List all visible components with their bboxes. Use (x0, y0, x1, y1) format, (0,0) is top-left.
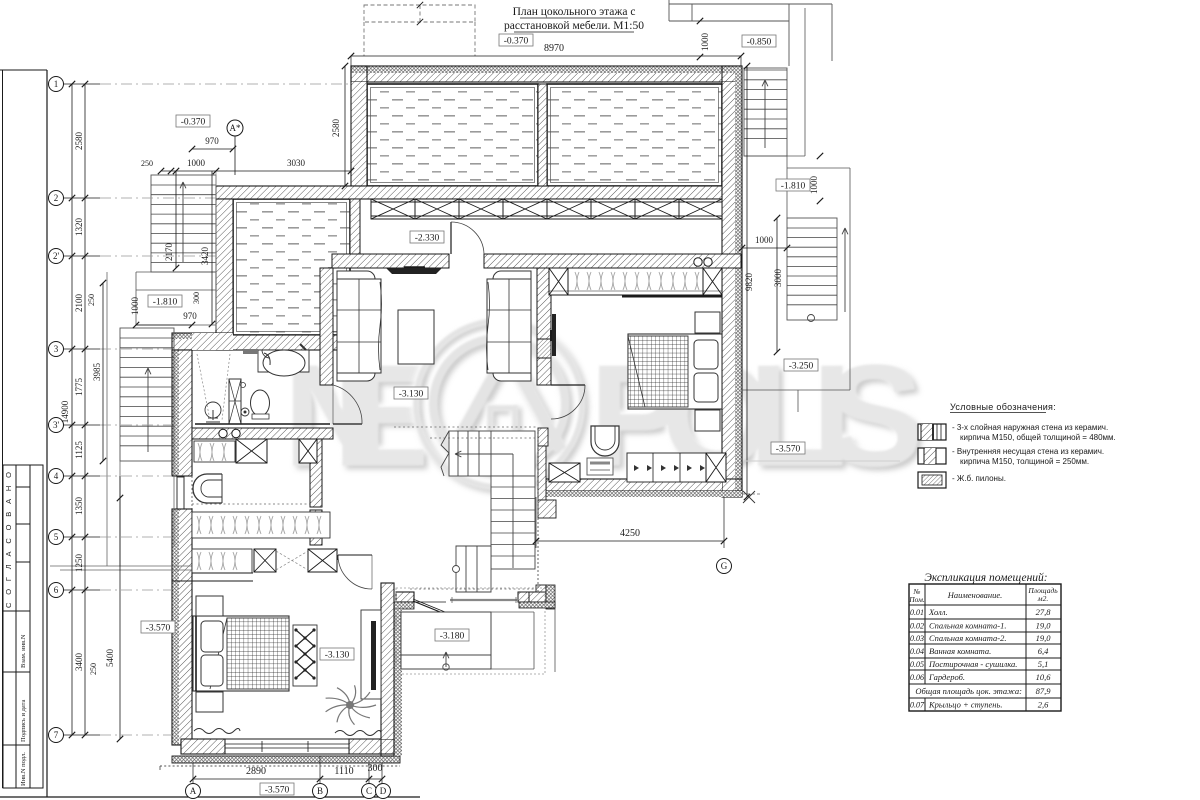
svg-text:970: 970 (205, 136, 219, 146)
svg-text:10,6: 10,6 (1036, 672, 1052, 682)
svg-text:19,0: 19,0 (1036, 621, 1052, 631)
svg-text:2580: 2580 (331, 119, 341, 138)
svg-text:250: 250 (87, 294, 96, 306)
svg-text:Экспликация помещений:: Экспликация помещений: (924, 571, 1047, 584)
svg-text:8970: 8970 (544, 43, 564, 54)
svg-text:970: 970 (183, 311, 197, 321)
svg-text:D: D (380, 786, 387, 796)
svg-text:27,8: 27,8 (1036, 607, 1052, 617)
svg-text:-3.180: -3.180 (440, 631, 465, 641)
svg-text:87,9: 87,9 (1036, 686, 1052, 696)
svg-text:5,1: 5,1 (1038, 659, 1049, 669)
svg-text:1000: 1000 (755, 235, 774, 245)
svg-text:7: 7 (54, 730, 59, 740)
svg-text:м2.: м2. (1037, 594, 1049, 603)
svg-text:- Ж.б. пилоны.: - Ж.б. пилоны. (952, 474, 1006, 483)
svg-text:0.03: 0.03 (910, 634, 924, 643)
svg-text:1000: 1000 (809, 176, 819, 195)
svg-text:C: C (366, 786, 372, 796)
svg-text:B: B (317, 786, 323, 796)
svg-text:кирпича М150, толщиной = 250мм: кирпича М150, толщиной = 250мм. (960, 457, 1089, 466)
svg-text:-0.850: -0.850 (747, 37, 772, 47)
svg-text:2: 2 (54, 193, 59, 203)
svg-text:6,4: 6,4 (1038, 646, 1049, 656)
svg-text:-3.130: -3.130 (399, 389, 424, 399)
svg-text:Холл.: Холл. (928, 607, 948, 617)
svg-text:4250: 4250 (620, 528, 640, 539)
svg-text:0.06: 0.06 (910, 673, 924, 682)
svg-text:-3.570: -3.570 (146, 623, 171, 633)
svg-text:3030: 3030 (287, 158, 306, 168)
svg-text:1000: 1000 (130, 297, 140, 316)
svg-text:План цокольного этажа с: План цокольного этажа с (513, 6, 636, 18)
svg-text:1000: 1000 (187, 158, 206, 168)
svg-text:3420: 3420 (200, 247, 210, 266)
svg-text:2580: 2580 (74, 132, 84, 151)
svg-text:300: 300 (368, 763, 383, 774)
svg-text:2890: 2890 (246, 766, 266, 777)
svg-text:14900: 14900 (60, 400, 70, 423)
svg-text:1250: 1250 (74, 554, 84, 573)
svg-text:3: 3 (54, 344, 59, 354)
svg-text:2': 2' (53, 251, 60, 261)
svg-text:1000: 1000 (700, 33, 710, 52)
svg-text:3000: 3000 (773, 269, 783, 288)
svg-text:-1.810: -1.810 (781, 181, 806, 191)
svg-text:-0.370: -0.370 (181, 117, 206, 127)
svg-text:2100: 2100 (74, 294, 84, 313)
svg-text:250: 250 (141, 159, 153, 168)
svg-text:1775: 1775 (74, 378, 84, 397)
svg-text:300: 300 (192, 292, 201, 304)
svg-text:0.04: 0.04 (910, 647, 924, 656)
svg-text:0.07: 0.07 (910, 701, 925, 710)
svg-text:-2.330: -2.330 (415, 233, 440, 243)
svg-text:Взам. инв.N: Взам. инв.N (20, 634, 27, 668)
svg-text:1125: 1125 (74, 441, 84, 459)
svg-text:кирпича М150, общей толщиной =: кирпича М150, общей толщиной = 480мм. (960, 433, 1116, 442)
svg-text:-3.570: -3.570 (265, 785, 290, 795)
svg-text:Крыльцо + ступень.: Крыльцо + ступень. (928, 700, 1003, 710)
svg-text:Пом.: Пом. (908, 595, 925, 604)
svg-text:4: 4 (54, 471, 59, 481)
svg-text:3985: 3985 (92, 363, 102, 382)
svg-text:5: 5 (54, 532, 59, 542)
svg-text:6: 6 (54, 585, 59, 595)
svg-text:Подпись и дата: Подпись и дата (20, 699, 27, 742)
svg-text:Постирочная - сушилка.: Постирочная - сушилка. (928, 659, 1017, 669)
svg-text:3400: 3400 (74, 653, 84, 672)
svg-text:- 3-х слойная наружная стена: - 3-х слойная наружная стена из керамич. (952, 423, 1108, 432)
svg-text:Условные обозначения:: Условные обозначения: (950, 402, 1056, 412)
svg-text:1: 1 (54, 79, 59, 89)
svg-text:2170: 2170 (164, 243, 174, 262)
svg-text:Общая площадь цок. этажа:: Общая площадь цок. этажа: (915, 686, 1022, 696)
svg-text:А*: А* (230, 123, 241, 133)
svg-text:1350: 1350 (74, 497, 84, 516)
svg-text:-3.570: -3.570 (776, 444, 801, 454)
svg-text:A: A (190, 786, 197, 796)
svg-text:0.05: 0.05 (910, 660, 924, 669)
svg-text:0.01: 0.01 (910, 608, 924, 617)
svg-text:Ванная комната.: Ванная комната. (929, 646, 991, 656)
svg-text:Наименование.: Наименование. (947, 590, 1003, 600)
svg-text:0.02: 0.02 (910, 622, 924, 631)
svg-text:- Внутренняя несущая стена из: - Внутренняя несущая стена из керамич. (952, 447, 1104, 456)
svg-text:Спальная комната-1.: Спальная комната-1. (929, 621, 1006, 631)
svg-text:G: G (721, 561, 728, 571)
svg-text:Спальная комната-2.: Спальная комната-2. (929, 633, 1006, 643)
svg-text:-0.370: -0.370 (504, 36, 529, 46)
svg-text:расстановкой мебели. М1:50: расстановкой мебели. М1:50 (504, 20, 644, 32)
svg-text:5400: 5400 (105, 649, 115, 668)
svg-text:Инв.N подл.: Инв.N подл. (20, 752, 27, 786)
svg-text:-3.250: -3.250 (789, 361, 814, 371)
svg-text:Гардероб.: Гардероб. (928, 672, 965, 682)
svg-text:9820: 9820 (744, 273, 754, 292)
svg-text:2,6: 2,6 (1038, 700, 1049, 710)
svg-text:1110: 1110 (334, 766, 353, 777)
svg-text:3': 3' (53, 420, 60, 430)
svg-text:-1.810: -1.810 (153, 297, 178, 307)
svg-text:19,0: 19,0 (1036, 633, 1052, 643)
svg-text:250: 250 (89, 663, 98, 675)
svg-text:-3.130: -3.130 (325, 650, 350, 660)
svg-text:1320: 1320 (74, 218, 84, 237)
